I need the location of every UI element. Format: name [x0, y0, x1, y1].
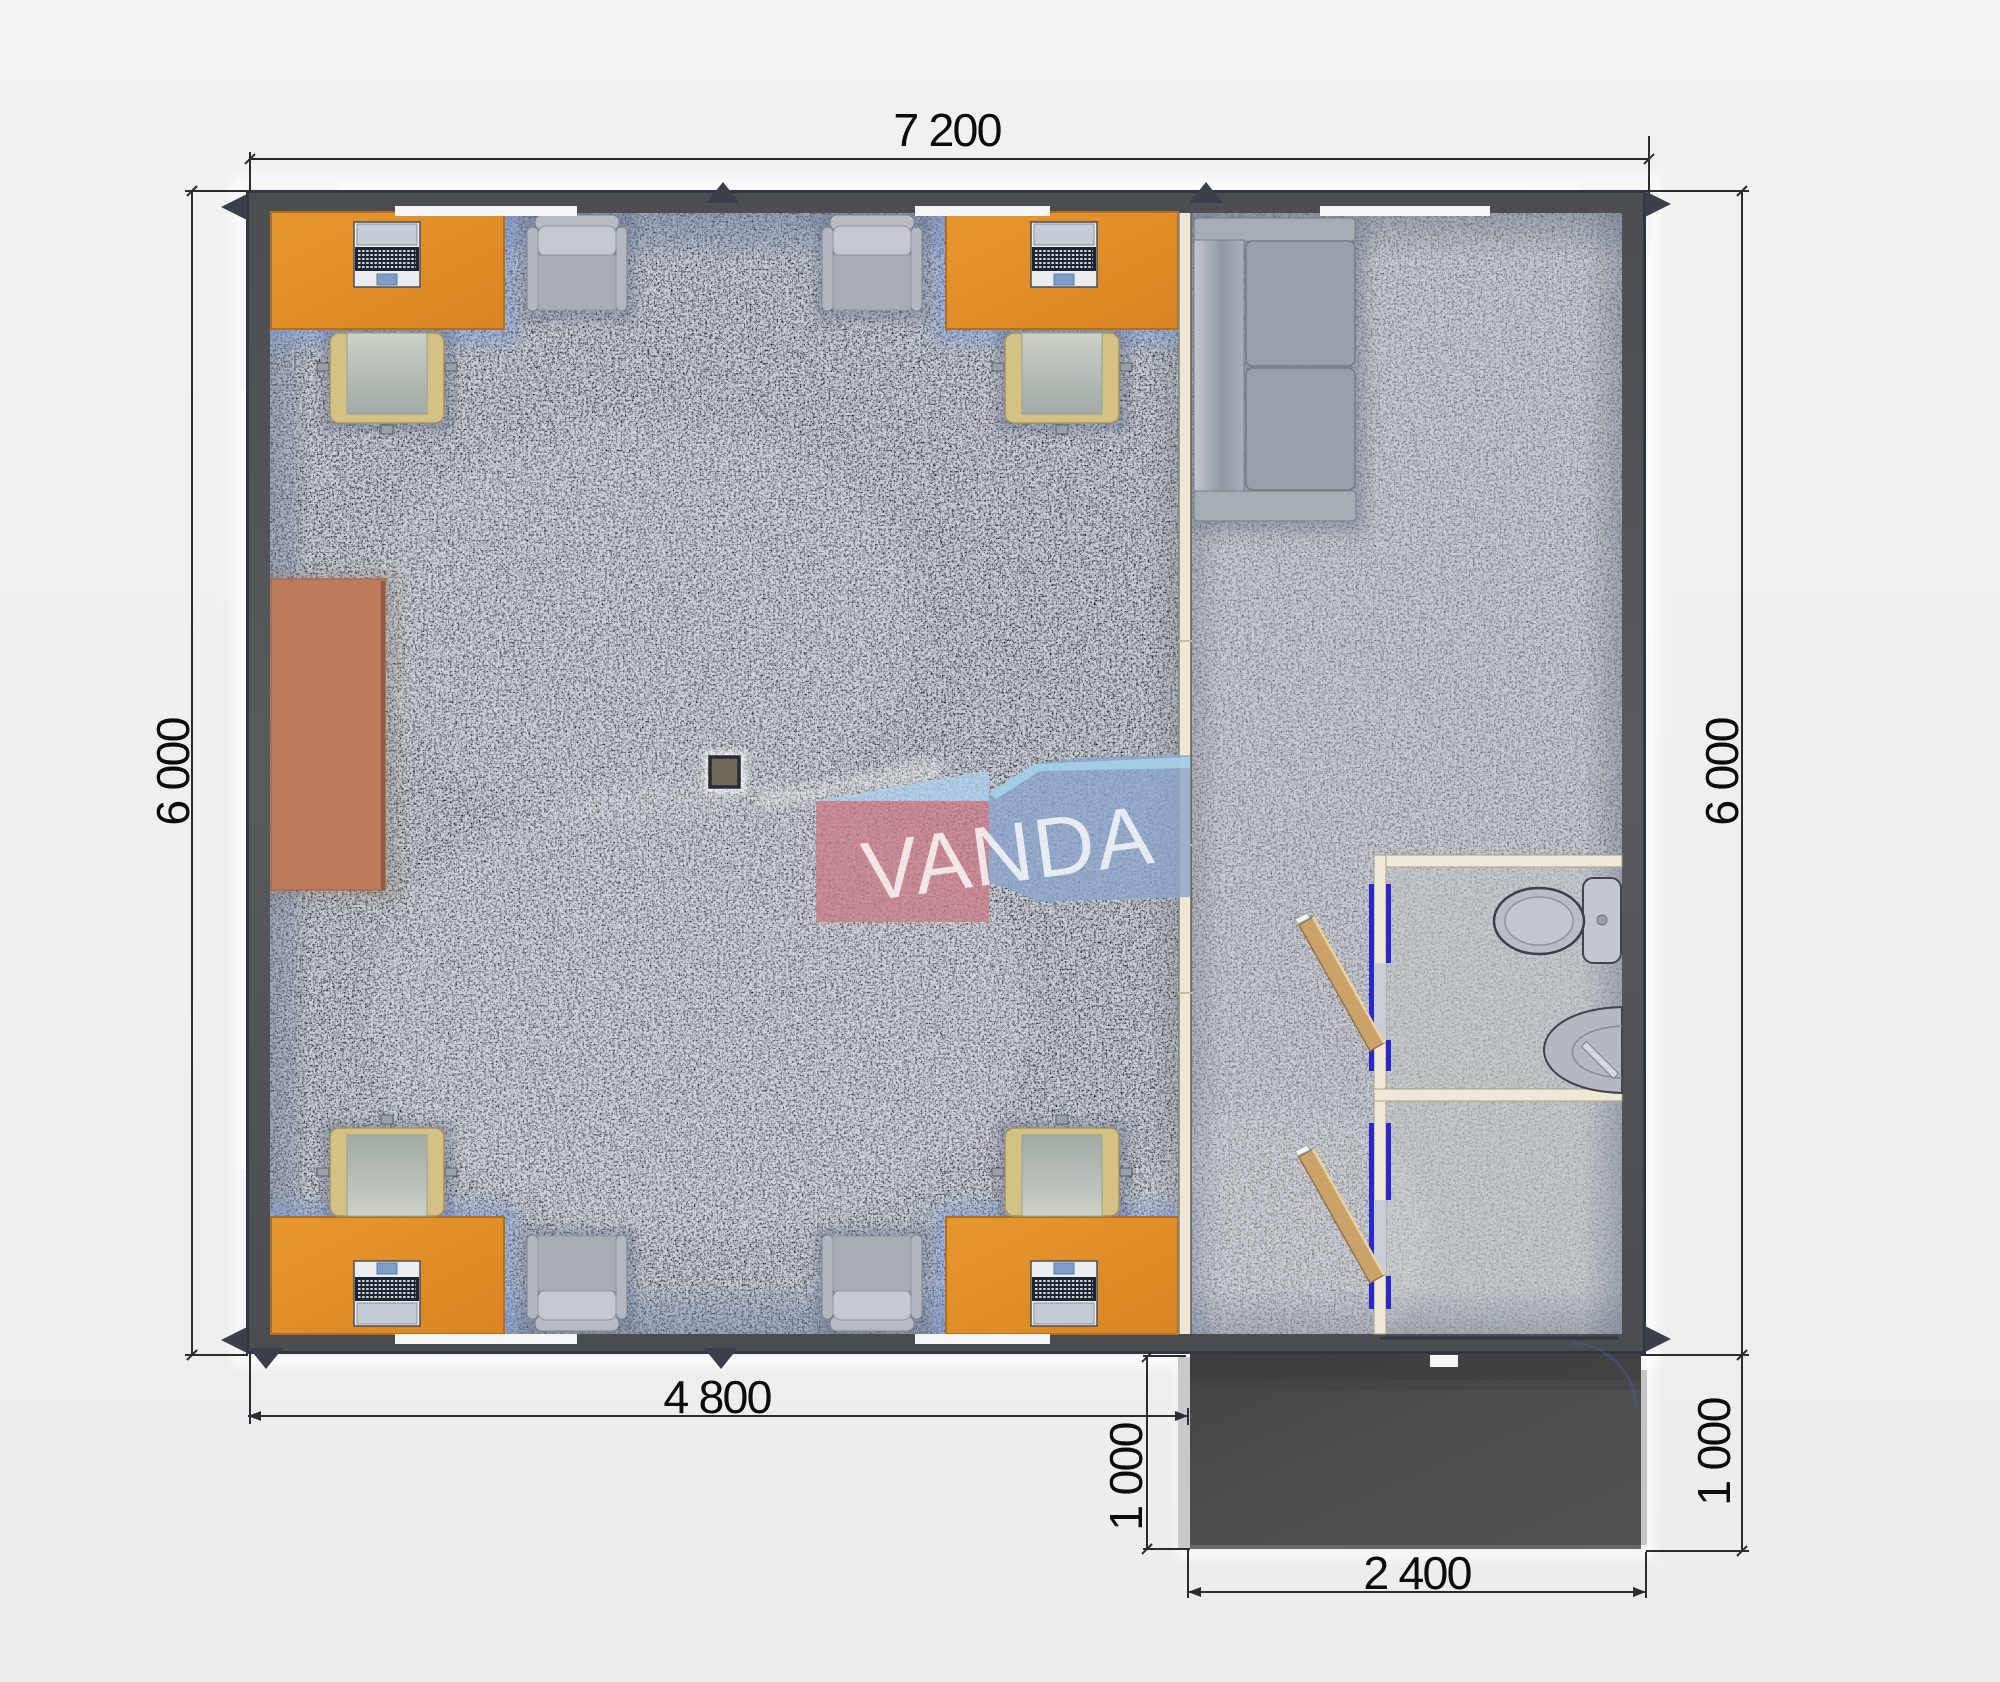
- svg-text:4 800: 4 800: [663, 1371, 771, 1423]
- svg-text:1 000: 1 000: [1100, 1422, 1152, 1530]
- svg-text:1 000: 1 000: [1688, 1397, 1740, 1505]
- svg-text:2 400: 2 400: [1363, 1547, 1471, 1599]
- svg-text:7 200: 7 200: [893, 104, 1001, 156]
- svg-text:6 000: 6 000: [147, 717, 199, 825]
- svg-text:6 000: 6 000: [1696, 717, 1748, 825]
